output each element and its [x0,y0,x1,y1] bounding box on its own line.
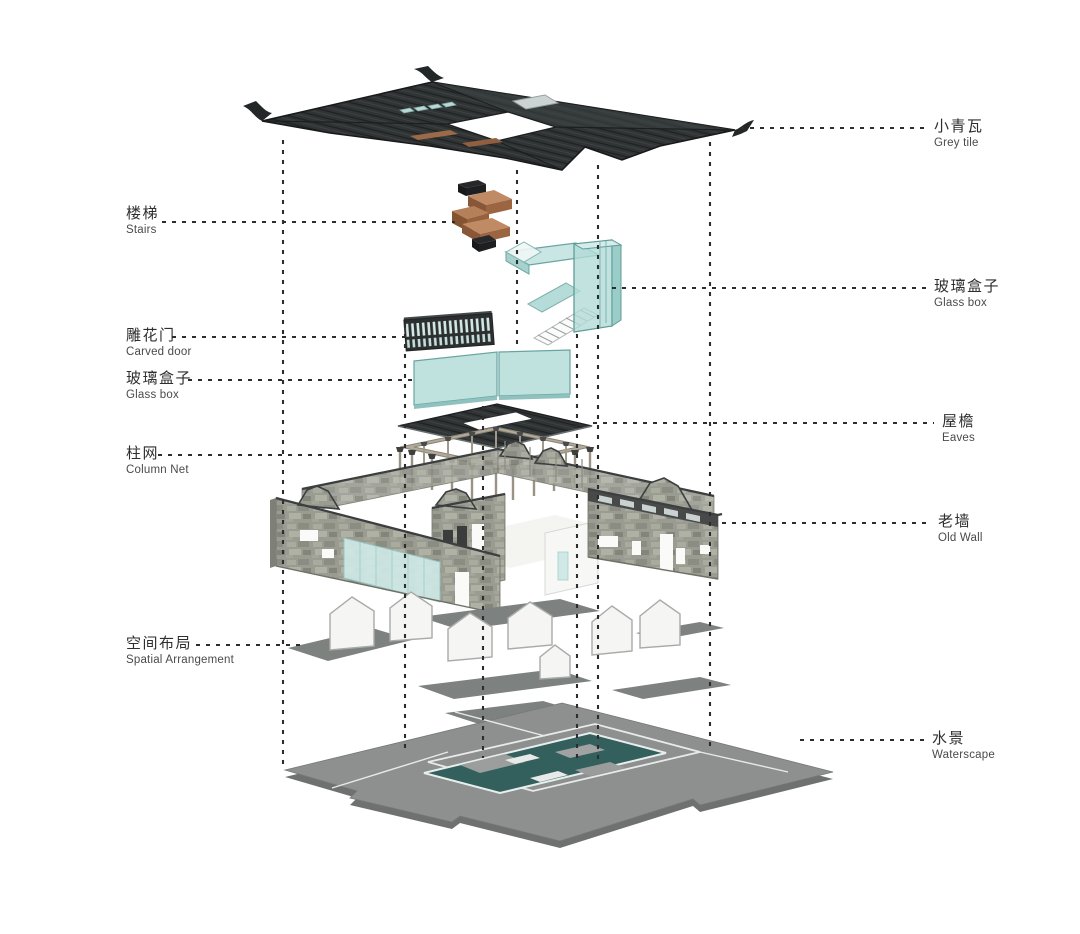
roof-horn-left [243,101,272,121]
label-column-net-en: Column Net [126,462,189,479]
label-carved-door: 雕花门 Carved door [126,327,191,361]
label-glass-box-left-zh: 玻璃盒子 [126,370,192,387]
label-waterscape: 水景 Waterscape [932,730,995,764]
carved-door-screen [404,313,494,351]
old-wall-layer [270,441,722,614]
label-spatial-arrangement: 空间布局 Spatial Arrangement [126,635,234,669]
waterscape-layer [285,703,833,848]
label-eaves: 屋檐 Eaves [942,413,975,447]
glass-box-panels-layer [414,350,570,409]
glass-panel-left [414,352,497,405]
label-glass-box-left: 玻璃盒子 Glass box [126,370,192,404]
label-eaves-zh: 屋檐 [942,413,975,430]
spatial-arrangement-layer [288,592,731,724]
label-old-wall-zh: 老墙 [938,513,983,530]
label-glass-box-right-zh: 玻璃盒子 [934,278,1000,295]
label-old-wall: 老墙 Old Wall [938,513,983,547]
grey-tile-roof-layer [243,66,754,170]
label-spatial-arrangement-en: Spatial Arrangement [126,652,234,669]
label-carved-door-zh: 雕花门 [126,327,191,344]
glass-panel-right [499,350,570,396]
label-stairs-en: Stairs [126,222,159,239]
exploded-axon-diagram: 楼梯 Stairs 雕花门 Carved door 玻璃盒子 Glass box… [0,0,1080,934]
label-grey-tile: 小青瓦 Grey tile [934,118,984,152]
label-stairs: 楼梯 Stairs [126,205,159,239]
label-carved-door-en: Carved door [126,344,191,361]
label-column-net: 柱网 Column Net [126,445,189,479]
glass-box-stair-layer [506,240,621,345]
stairs-layer [452,180,512,252]
label-stairs-zh: 楼梯 [126,205,159,222]
label-grey-tile-en: Grey tile [934,135,984,152]
label-glass-box-right: 玻璃盒子 Glass box [934,278,1000,312]
label-waterscape-en: Waterscape [932,747,995,764]
label-glass-box-left-en: Glass box [126,387,192,404]
label-column-net-zh: 柱网 [126,445,189,462]
label-eaves-en: Eaves [942,430,975,447]
carved-door-layer [404,311,494,351]
roof-horn-top [414,66,444,82]
label-spatial-arrangement-zh: 空间布局 [126,635,234,652]
glass-stair-landing [528,283,580,312]
label-old-wall-en: Old Wall [938,530,983,547]
label-waterscape-zh: 水景 [932,730,995,747]
label-glass-box-right-en: Glass box [934,295,1000,312]
label-grey-tile-zh: 小青瓦 [934,118,984,135]
